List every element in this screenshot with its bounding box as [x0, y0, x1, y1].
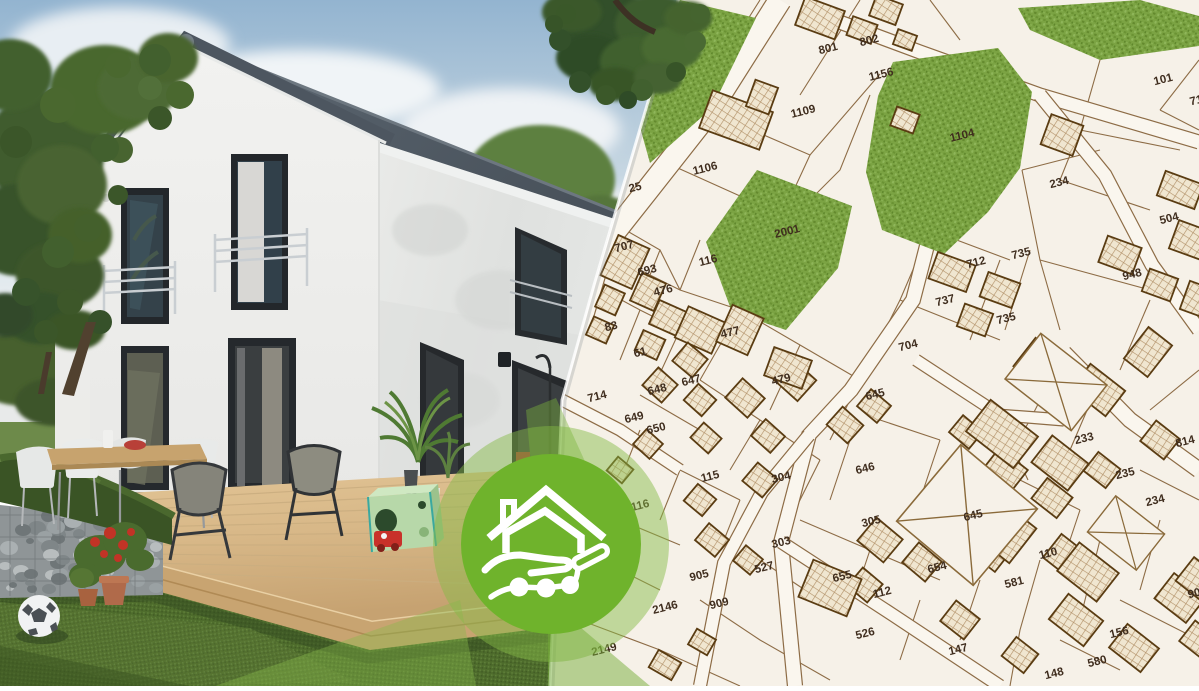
- svg-text:71: 71: [1189, 93, 1199, 108]
- svg-text:90: 90: [1187, 587, 1199, 602]
